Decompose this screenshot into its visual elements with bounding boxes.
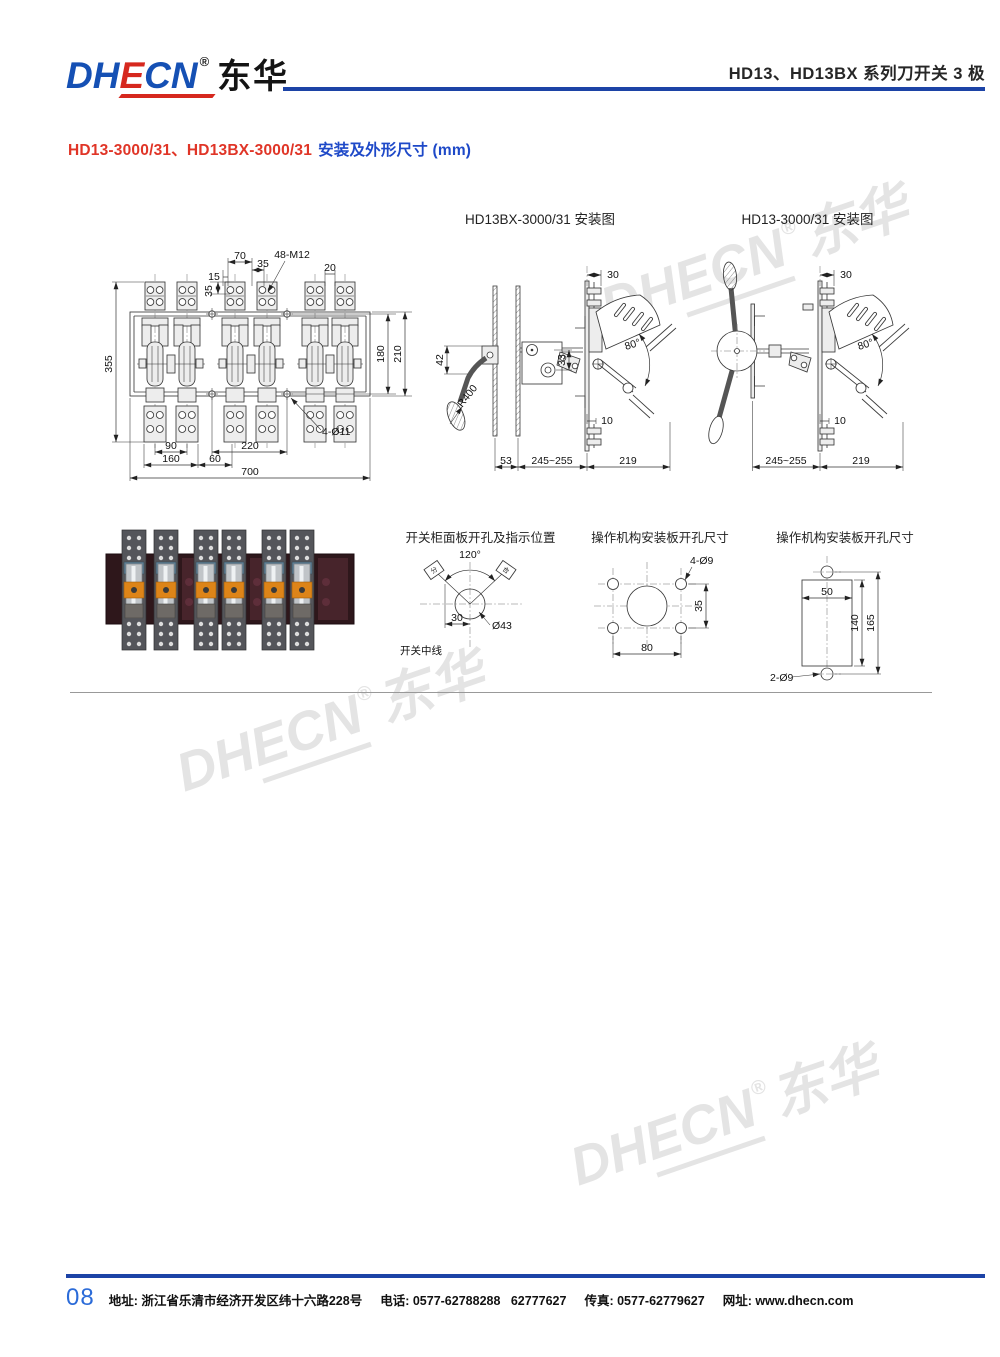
dim-label: 30 (840, 269, 852, 281)
watermark-bottom-right: DHECN®东华 (558, 1022, 887, 1201)
catalog-page: DHECN®东华 DHECN®东华 DHECN®东华 DHECN®东华 HD13… (0, 0, 1000, 1357)
hd-view-drawing: 30 80° 10 245~255 219 (693, 246, 943, 481)
product-photo (102, 524, 360, 656)
subtitle-desc: 安装及外形尺寸 (mm) (318, 142, 471, 159)
dim-label: 42 (434, 354, 446, 366)
dim-label: 165 (865, 614, 877, 632)
dim-label: 10 (601, 415, 613, 427)
registered-icon: ® (200, 54, 210, 69)
dim-label: 120° (459, 549, 481, 561)
dim-label: 10 (834, 415, 846, 427)
logo-underline (119, 94, 216, 98)
page-title: HD13、HD13BX 系列刀开关 3 极 (729, 60, 985, 84)
logo-cjk: 东华 (217, 58, 289, 96)
logo-cn: CN (144, 55, 197, 96)
dim-label: 4-Ø11 (322, 426, 351, 438)
dim-label: 20 (324, 262, 336, 274)
subtitle-models: HD13-3000/31、HD13BX-3000/31 (68, 142, 312, 159)
dim-label: 50 (821, 586, 833, 598)
panel-dimensions: 120° 30 Ø43 开关中线 (400, 549, 512, 657)
logo-dh: DH (66, 55, 119, 96)
footer-fax: 传真: 0577-62779627 (584, 1290, 704, 1309)
footer-phone: 电话: 0577-62788288 62777627 (380, 1290, 566, 1309)
dim-label: 245~255 (531, 455, 572, 467)
watermark-text: 东华 (764, 1036, 886, 1128)
dim-label: 35 (203, 285, 215, 297)
front-poles (137, 274, 363, 448)
dim-label: 220 (241, 440, 259, 452)
dim-label: 4-Ø9 (690, 555, 714, 567)
dim-label: 160 (162, 453, 180, 465)
watermark-text: ECN (243, 684, 372, 784)
dim-label: 219 (619, 455, 637, 467)
section-subtitle: HD13-3000/31、HD13BX-3000/31安装及外形尺寸 (mm) (68, 138, 471, 160)
footer-website: 网址: www.dhecn.com (723, 1290, 854, 1309)
section-divider (70, 692, 932, 693)
dim-label: 210 (392, 345, 404, 363)
dim-label: 80 (641, 642, 653, 654)
page-number: 08 (66, 1284, 95, 1312)
dim-label: 33 (556, 354, 568, 366)
dim-label: 219 (852, 455, 870, 467)
logo-e: E (119, 55, 144, 96)
panel-geometry: 分 合 (420, 560, 524, 648)
footer-address: 地址: 浙江省乐清市经济开发区纬十六路228号 (109, 1290, 363, 1309)
dim-label: 2-Ø9 (770, 672, 794, 684)
mount4-drawing: 4-Ø9 35 80 (578, 544, 743, 674)
dim-label: 140 (849, 614, 861, 632)
dim-label: 180 (375, 345, 387, 363)
mount2-drawing: 50 140 165 2-Ø9 (758, 544, 933, 684)
hd-geometry (706, 261, 909, 451)
dim-label: 60 (209, 453, 221, 465)
dim-label: Ø43 (492, 620, 512, 632)
dim-label: 30 (607, 269, 619, 281)
dim-label: R400 (455, 382, 480, 409)
mount2-geometry (802, 556, 852, 682)
dim-label: 700 (241, 466, 259, 478)
dim-label: 35 (257, 258, 269, 270)
mount4-geometry (594, 562, 700, 650)
dim-label: 48-M12 (274, 249, 310, 261)
watermark-text: ECN (637, 1078, 766, 1178)
dim-label: 245~255 (765, 455, 806, 467)
panel-cutout-drawing: 分 合 120° 30 Ø43 开关中线 (398, 544, 558, 662)
front-view-drawing: 70 35 15 35 48-M12 20 355 180 (100, 246, 430, 496)
mount2-dimensions: 50 140 165 2-Ø9 (770, 572, 881, 684)
dim-label: 90 (165, 440, 177, 452)
hd-drawing-title: HD13-3000/31 安装图 (690, 208, 925, 228)
centerline-label: 开关中线 (400, 644, 442, 657)
brand-logo: DHECN®东华 (66, 55, 289, 94)
dim-label: 30 (451, 612, 463, 624)
bx-drawing-title: HD13BX-3000/31 安装图 (420, 208, 660, 228)
dim-label: 355 (103, 355, 115, 373)
footer: 08 地址: 浙江省乐清市经济开发区纬十六路228号 电话: 0577-6278… (66, 1284, 986, 1312)
footer-rule (66, 1274, 985, 1278)
dim-label: 53 (500, 455, 512, 467)
dim-label: 35 (693, 600, 705, 612)
dim-label: 15 (208, 271, 220, 283)
bx-view-drawing: 30 42 R400 33 80° 10 53 245~255 (430, 246, 700, 481)
header-rule (283, 87, 985, 91)
dim-label: 70 (234, 250, 246, 262)
